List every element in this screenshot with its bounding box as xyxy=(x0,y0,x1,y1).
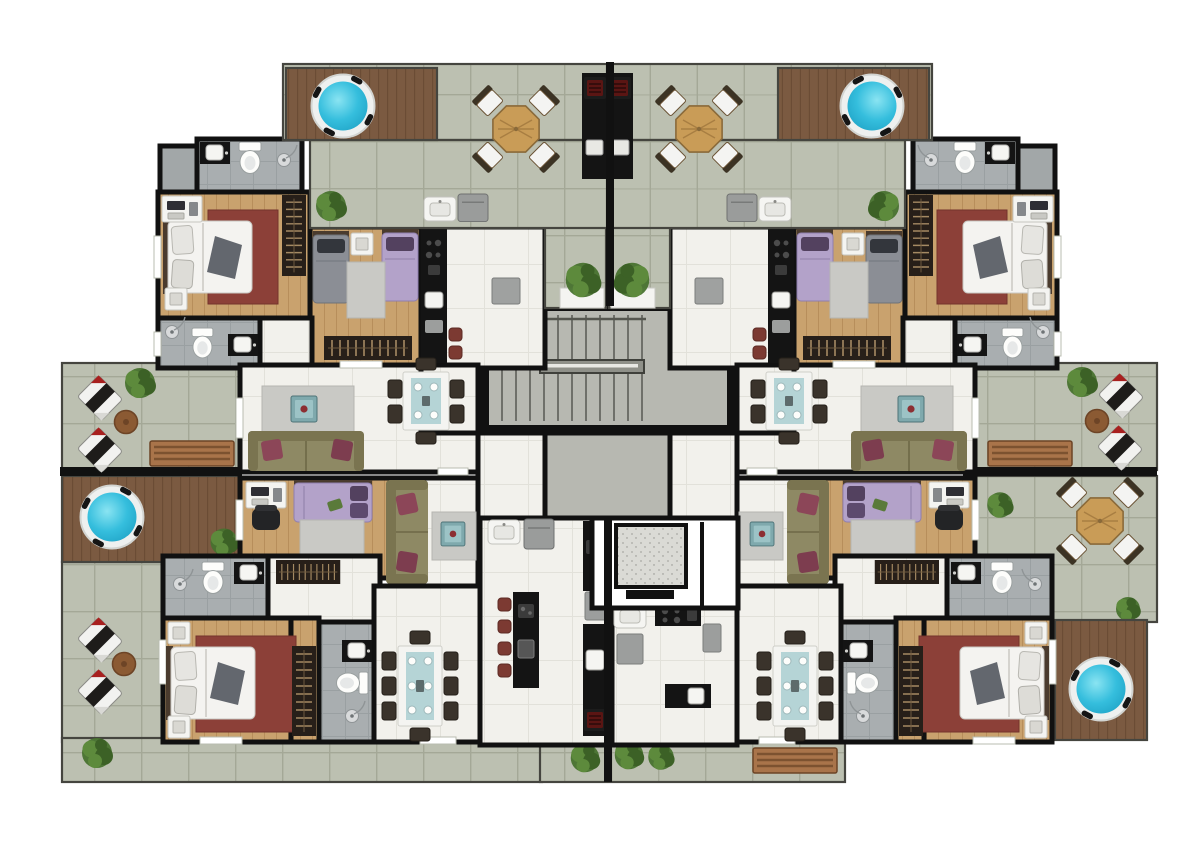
side-table xyxy=(1086,410,1109,433)
toilet xyxy=(337,672,369,694)
wardrobe xyxy=(282,195,306,276)
kitchen-lower-left xyxy=(480,518,608,745)
double-bed xyxy=(163,220,252,294)
elevator-block xyxy=(592,518,738,608)
wardrobe xyxy=(324,336,412,360)
toilet xyxy=(192,328,213,358)
kitchen-sink xyxy=(425,292,443,308)
bar-stool xyxy=(498,598,511,611)
single-bed-purple xyxy=(382,229,418,301)
sofa xyxy=(248,431,364,471)
bar-stool xyxy=(498,620,511,633)
entry-cabinet xyxy=(492,278,520,304)
grill xyxy=(584,709,606,731)
apartment-lower-left-rooms xyxy=(159,556,480,744)
floor-plan-canvas xyxy=(0,0,1200,856)
central-divider-wall-top xyxy=(606,62,614,306)
kitchen-island xyxy=(513,592,539,688)
apartment-lower-right-rooms xyxy=(735,556,1056,744)
fridge xyxy=(524,519,554,549)
kitchen-sink xyxy=(688,688,704,704)
toilet xyxy=(202,562,224,594)
cutting-board xyxy=(425,320,443,333)
storage-duct xyxy=(160,146,197,192)
cooktop xyxy=(423,233,445,279)
plunge-pool xyxy=(312,75,375,138)
bathroom-sink xyxy=(228,334,258,356)
bathroom-sink xyxy=(200,142,230,164)
wardrobe xyxy=(292,646,316,736)
coffee-table xyxy=(291,396,317,422)
rug xyxy=(347,262,385,318)
bar-stool xyxy=(498,664,511,677)
jacuzzi-right xyxy=(1070,658,1133,721)
roof-terrace-left xyxy=(283,64,607,228)
toilet xyxy=(239,142,261,174)
coffee-table xyxy=(441,522,465,546)
side-table xyxy=(115,411,138,434)
nightstand xyxy=(168,622,190,644)
bench xyxy=(988,441,1072,466)
nightstand xyxy=(168,716,190,738)
central-divider-wall-bottom xyxy=(604,518,612,782)
jacuzzi-left xyxy=(81,486,144,549)
double-bed xyxy=(166,646,255,720)
desk xyxy=(162,196,202,222)
single-bed-gray xyxy=(313,231,349,303)
double-bed-purple xyxy=(294,480,372,522)
terrace-bottom-left-strip xyxy=(62,738,542,782)
desk-chair xyxy=(252,505,280,530)
sofa xyxy=(386,480,428,584)
bedroom-hall xyxy=(260,318,312,368)
lobby-side-hall xyxy=(478,433,545,518)
terrace-divider-wall-right xyxy=(963,467,1157,476)
bbq-sink xyxy=(586,140,603,155)
terrace-divider-wall-left xyxy=(60,467,242,476)
terrace-sink xyxy=(424,197,456,221)
appliance xyxy=(617,634,643,664)
bar-stool xyxy=(449,346,462,359)
kitchen-sink xyxy=(586,650,604,670)
stair-center-rail-slot xyxy=(546,364,638,368)
desk xyxy=(246,482,286,508)
bench xyxy=(150,441,234,466)
wardrobe-dresser xyxy=(276,560,340,584)
bbq-grill xyxy=(584,77,606,99)
elevator-door xyxy=(626,590,674,599)
bar-stool xyxy=(449,328,462,341)
bar-stool xyxy=(498,642,511,655)
nightstand xyxy=(165,288,187,310)
bench xyxy=(753,748,837,773)
floor-plan-svg xyxy=(0,0,1200,856)
roof-terrace-right xyxy=(608,64,932,228)
nightstand xyxy=(351,233,373,255)
bathroom-sink xyxy=(342,640,372,662)
appliance xyxy=(703,624,721,652)
kitchen-lower-right xyxy=(612,600,737,745)
bathroom-sink xyxy=(234,562,264,584)
elevator-cab xyxy=(616,525,686,587)
kitchen-sink-unit xyxy=(488,520,520,544)
terrace-cabinet xyxy=(458,194,488,222)
side-table xyxy=(113,653,136,676)
